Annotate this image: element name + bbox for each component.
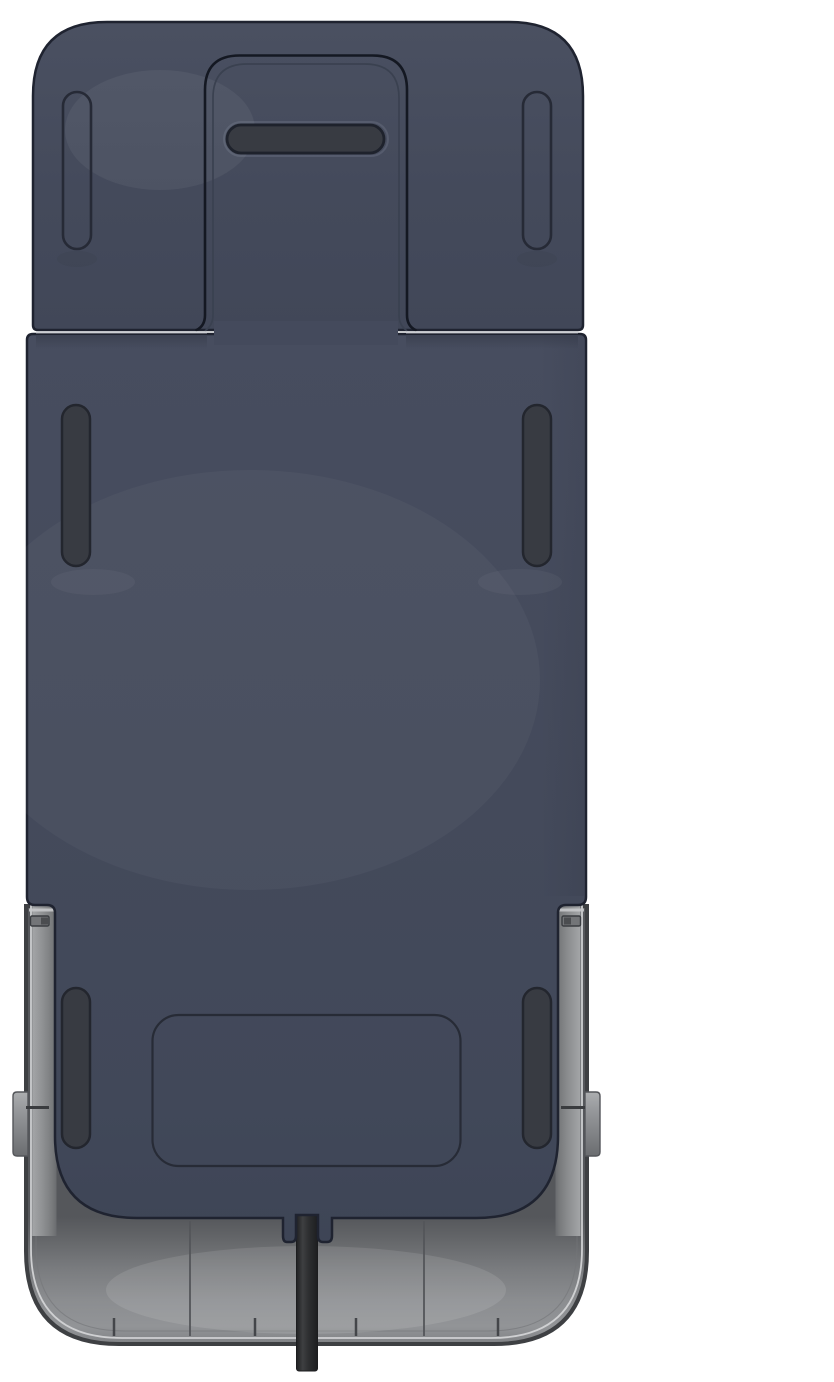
power-cable	[297, 1208, 318, 1371]
device-render-scene	[0, 0, 834, 1382]
right-rail-top-highlight	[556, 909, 584, 912]
slot-glow-right	[478, 569, 562, 595]
right-rail-bracket	[562, 916, 581, 926]
body-slot-lower-left	[62, 988, 90, 1148]
right-mount-tab	[585, 1092, 600, 1156]
left-rail-top-highlight	[29, 909, 56, 912]
seam-shadow-left	[36, 336, 207, 349]
handle-slot	[227, 125, 384, 153]
left-rail-bracket	[31, 916, 50, 926]
left-rail	[32, 906, 56, 1236]
cap-slot-shadow-left	[57, 251, 97, 267]
cap-tongue	[214, 321, 398, 345]
seam-light-right	[406, 331, 578, 333]
left-mount-tab	[13, 1092, 28, 1156]
top-cap	[33, 22, 583, 345]
main-body	[0, 334, 586, 1242]
body-slot-upper-right	[523, 405, 551, 566]
body-slot-upper-left	[62, 405, 90, 566]
body-slot-lower-right	[523, 988, 551, 1148]
slot-glow-left	[51, 569, 135, 595]
cap-slot-shadow-right	[517, 251, 557, 267]
seam-light-left	[36, 331, 207, 333]
seam-shadow-right	[406, 336, 578, 349]
